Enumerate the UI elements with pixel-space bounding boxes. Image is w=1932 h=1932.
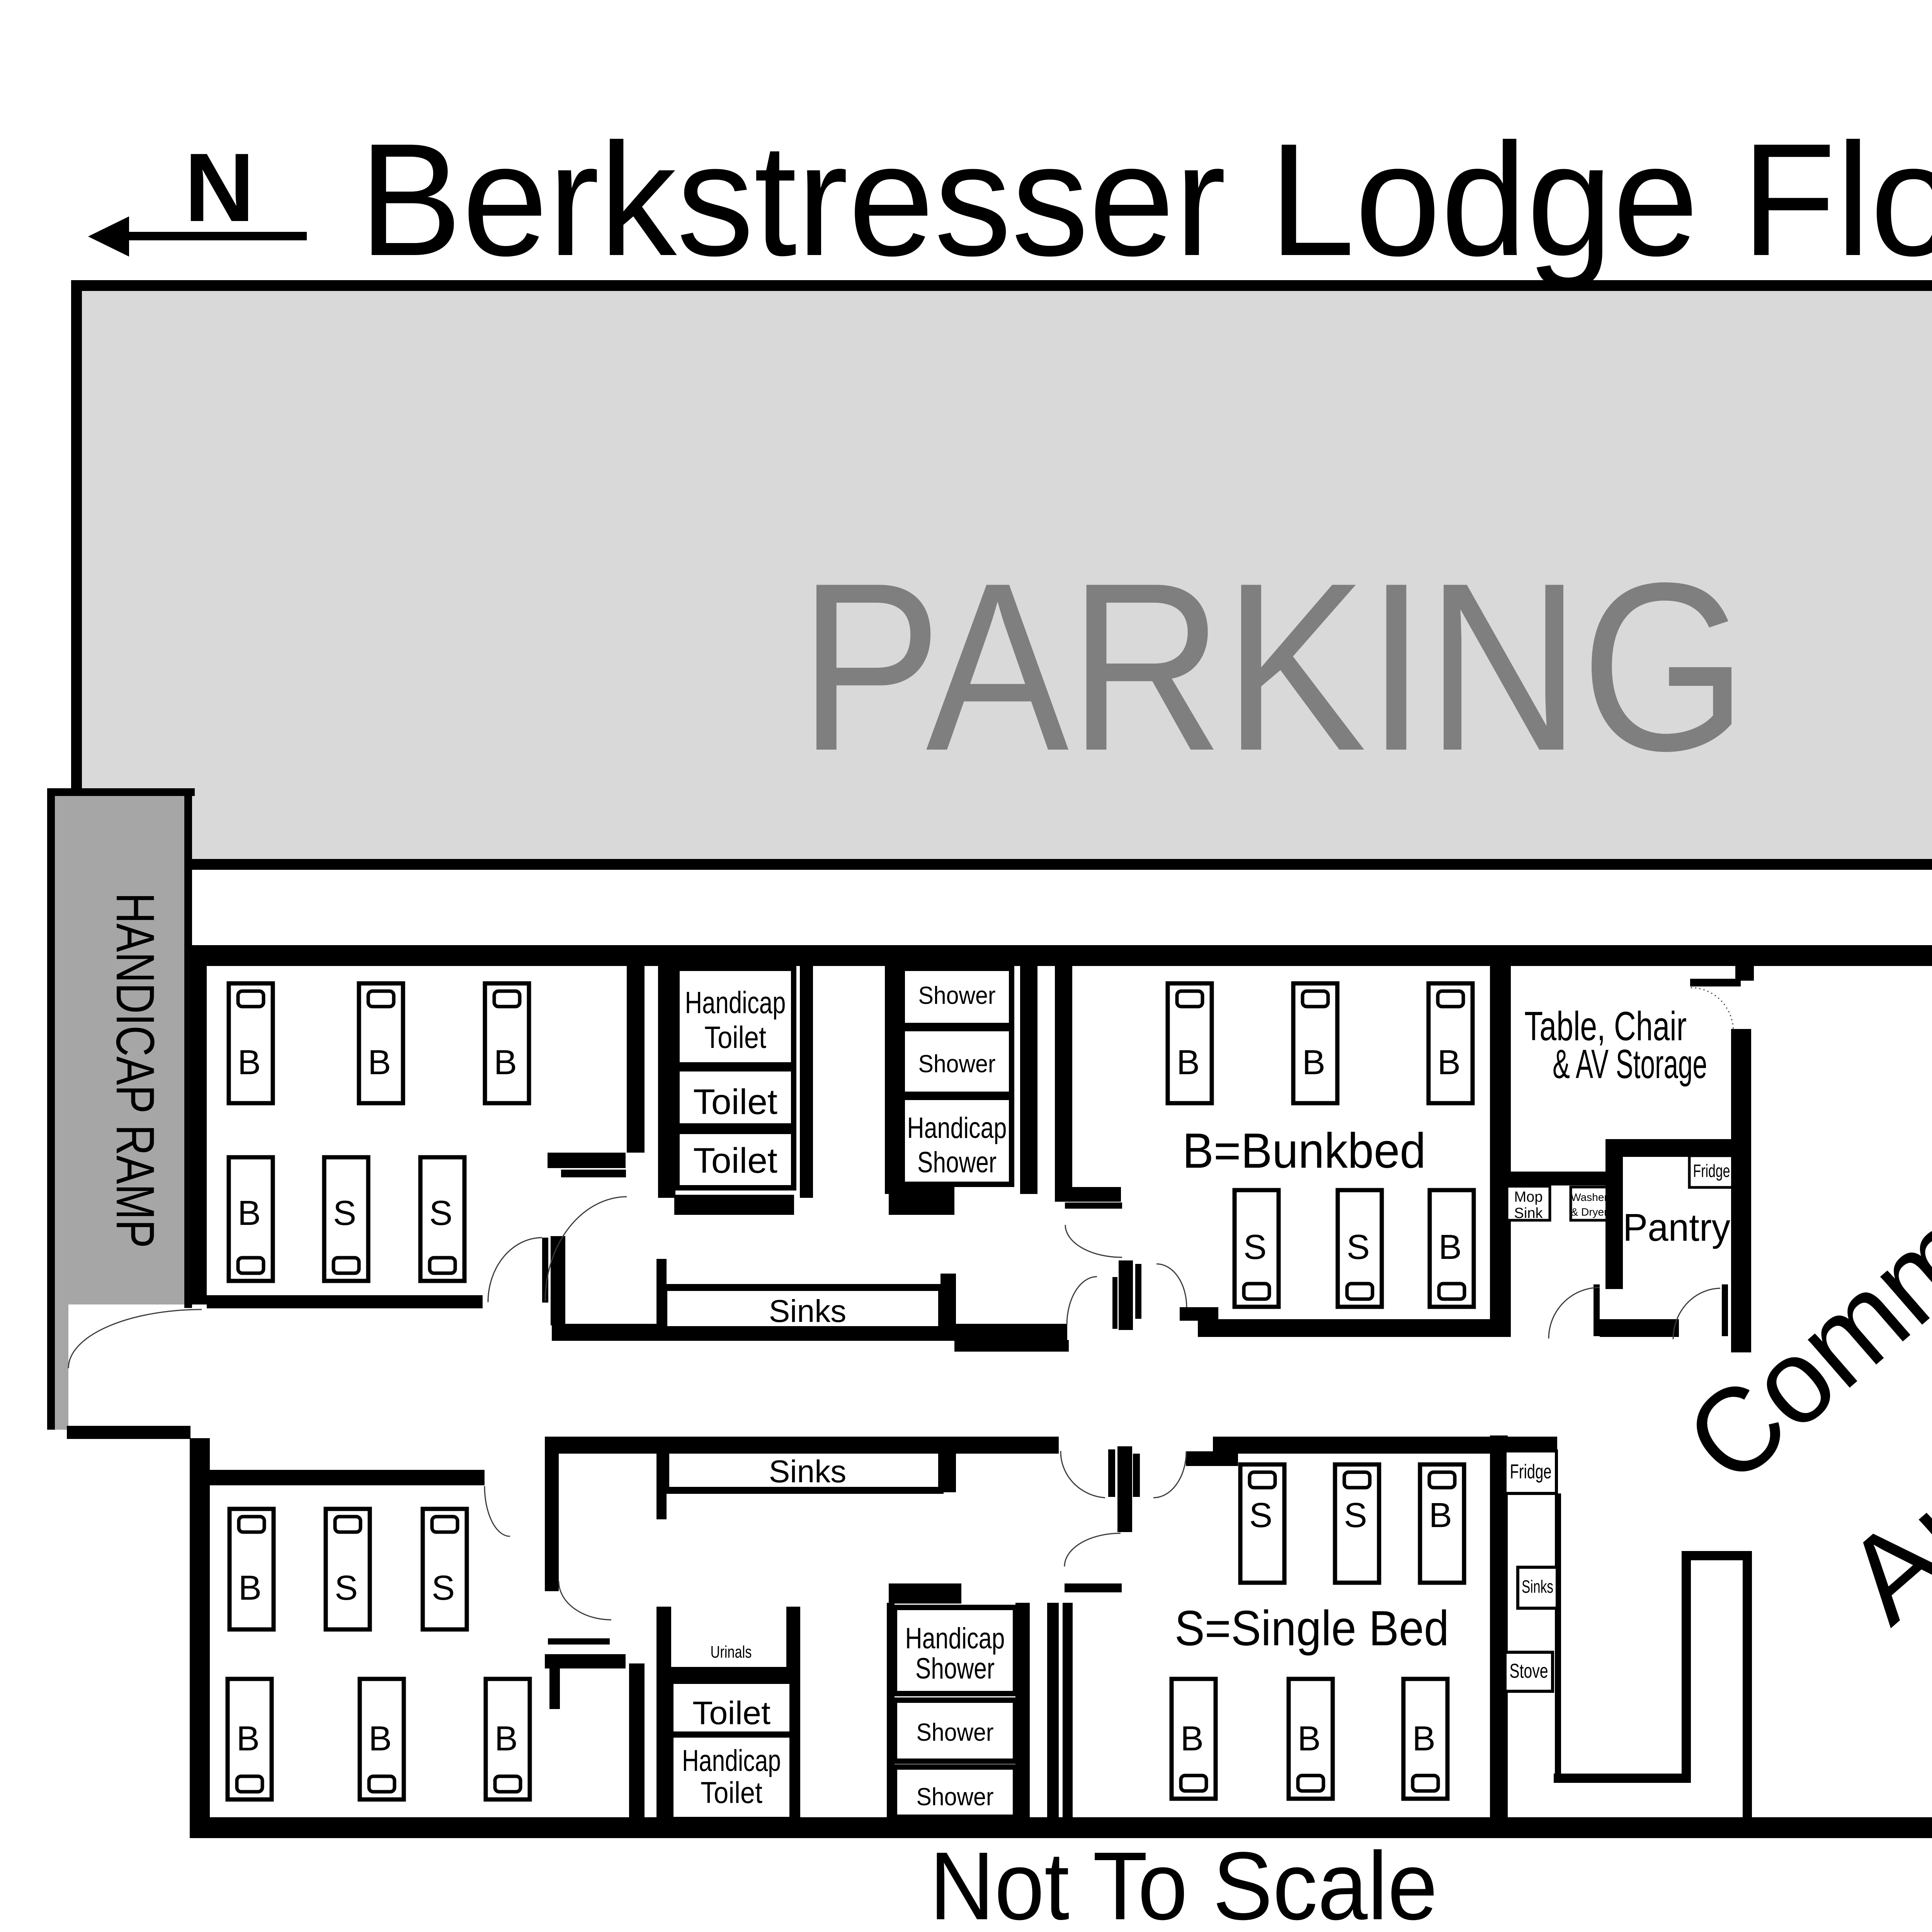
- svg-text:Toilet: Toilet: [692, 1695, 770, 1731]
- svg-text:Sink: Sink: [1514, 1205, 1543, 1221]
- svg-text:B: B: [1437, 1043, 1461, 1082]
- svg-text:S: S: [333, 1194, 356, 1233]
- svg-text:& AV Storage: & AV Storage: [1553, 1041, 1707, 1087]
- svg-text:B: B: [238, 1194, 261, 1233]
- svg-text:B: B: [1439, 1228, 1462, 1267]
- svg-text:B: B: [494, 1043, 517, 1082]
- svg-text:Shower: Shower: [915, 1652, 995, 1685]
- svg-text:Shower: Shower: [918, 1050, 996, 1078]
- svg-text:N: N: [184, 133, 255, 242]
- svg-text:S: S: [1344, 1496, 1367, 1535]
- svg-text:B: B: [495, 1719, 518, 1758]
- svg-text:S: S: [1243, 1228, 1267, 1267]
- svg-text:B: B: [368, 1043, 391, 1082]
- svg-text:Shower: Shower: [917, 1146, 997, 1179]
- svg-text:B: B: [1180, 1719, 1204, 1758]
- svg-text:S: S: [335, 1569, 358, 1607]
- svg-text:PARKING: PARKING: [799, 533, 1748, 801]
- svg-text:Handicap: Handicap: [907, 1112, 1007, 1145]
- svg-text:S: S: [1347, 1228, 1370, 1267]
- svg-text:Toilet: Toilet: [704, 1020, 766, 1054]
- svg-text:B: B: [236, 1719, 260, 1758]
- svg-text:Toilet: Toilet: [693, 1141, 777, 1180]
- svg-text:Shower: Shower: [918, 981, 996, 1009]
- svg-text:S: S: [429, 1194, 452, 1233]
- svg-text:Sinks: Sinks: [769, 1454, 847, 1489]
- svg-text:Shower: Shower: [917, 1783, 994, 1811]
- svg-text:Handicap: Handicap: [682, 1743, 781, 1777]
- svg-text:Not To Scale: Not To Scale: [930, 1832, 1438, 1932]
- svg-text:B=Bunkbed: B=Bunkbed: [1182, 1123, 1426, 1179]
- svg-text:Washer: Washer: [1571, 1191, 1607, 1203]
- svg-text:Sinks: Sinks: [1522, 1577, 1553, 1597]
- svg-text:HANDICAP RAMP: HANDICAP RAMP: [105, 893, 166, 1248]
- svg-text:B: B: [1298, 1719, 1321, 1758]
- svg-text:B: B: [369, 1719, 392, 1758]
- svg-text:Berkstresser Lodge Floorplan: Berkstresser Lodge Floorplan: [359, 110, 1932, 290]
- svg-text:Sinks: Sinks: [769, 1294, 847, 1329]
- svg-text:Toilet: Toilet: [693, 1082, 777, 1122]
- svg-text:Mop: Mop: [1514, 1189, 1543, 1205]
- svg-text:Fridge: Fridge: [1510, 1461, 1552, 1483]
- svg-text:B: B: [1177, 1043, 1200, 1082]
- svg-text:B: B: [238, 1043, 261, 1082]
- svg-text:Stove: Stove: [1510, 1660, 1548, 1682]
- svg-text:S: S: [1249, 1496, 1272, 1535]
- svg-text:B: B: [1302, 1043, 1325, 1082]
- svg-text:Handicap: Handicap: [905, 1622, 1005, 1655]
- svg-text:B: B: [1412, 1719, 1435, 1758]
- svg-text:S=Single Bed: S=Single Bed: [1175, 1601, 1449, 1656]
- svg-text:S: S: [432, 1569, 455, 1607]
- svg-text:B: B: [238, 1569, 262, 1607]
- svg-text:Pantry: Pantry: [1623, 1206, 1730, 1249]
- svg-text:Toilet: Toilet: [701, 1776, 762, 1810]
- svg-text:& Dryer: & Dryer: [1571, 1206, 1608, 1218]
- svg-text:Fridge: Fridge: [1693, 1161, 1730, 1181]
- svg-text:Handicap: Handicap: [685, 985, 786, 1020]
- svg-text:Shower: Shower: [917, 1718, 994, 1746]
- svg-text:B: B: [1429, 1496, 1452, 1535]
- svg-text:Urinals: Urinals: [711, 1643, 752, 1662]
